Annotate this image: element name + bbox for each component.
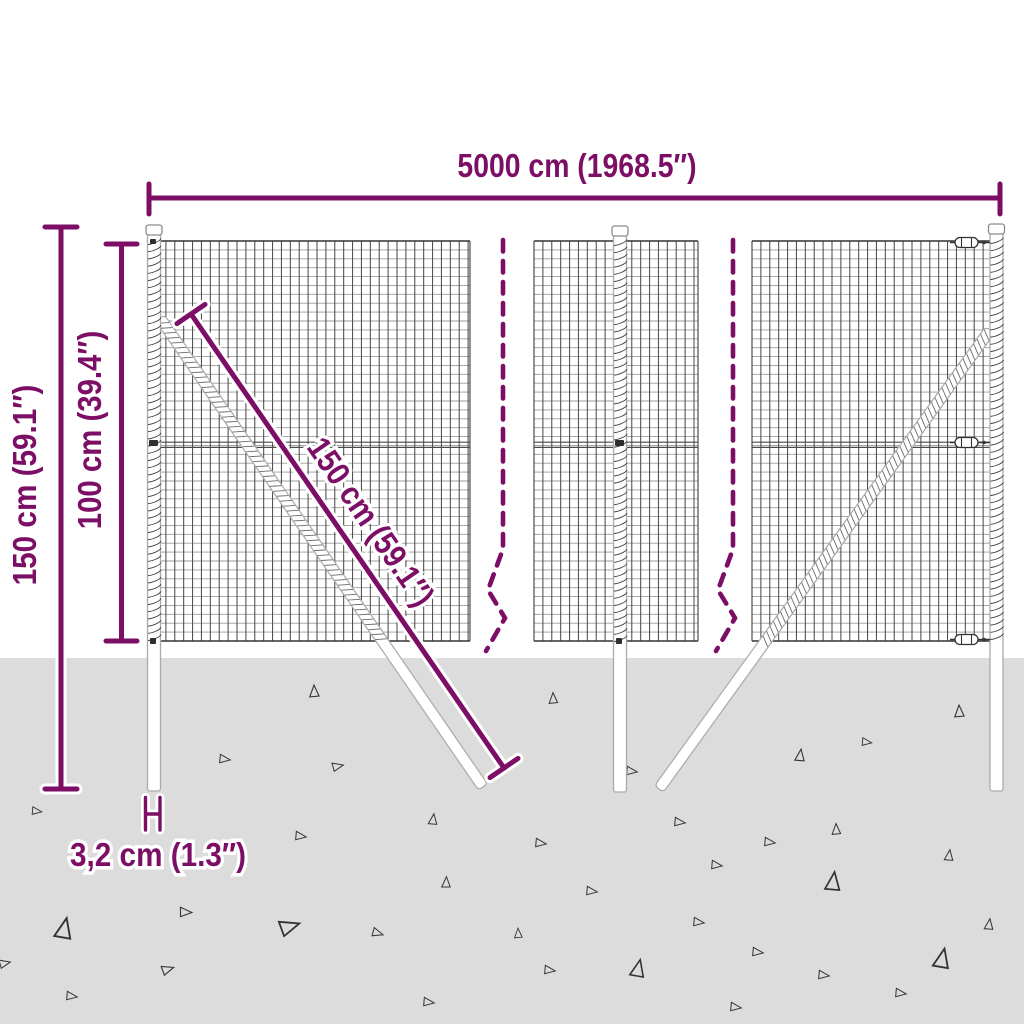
svg-text:3,2 cm (1.3″): 3,2 cm (1.3″) [70, 837, 246, 874]
svg-text:150 cm (59.1″): 150 cm (59.1″) [7, 385, 44, 586]
svg-text:5000 cm (1968.5″): 5000 cm (1968.5″) [457, 147, 696, 185]
svg-text:100 cm (39.4″): 100 cm (39.4″) [71, 331, 108, 529]
